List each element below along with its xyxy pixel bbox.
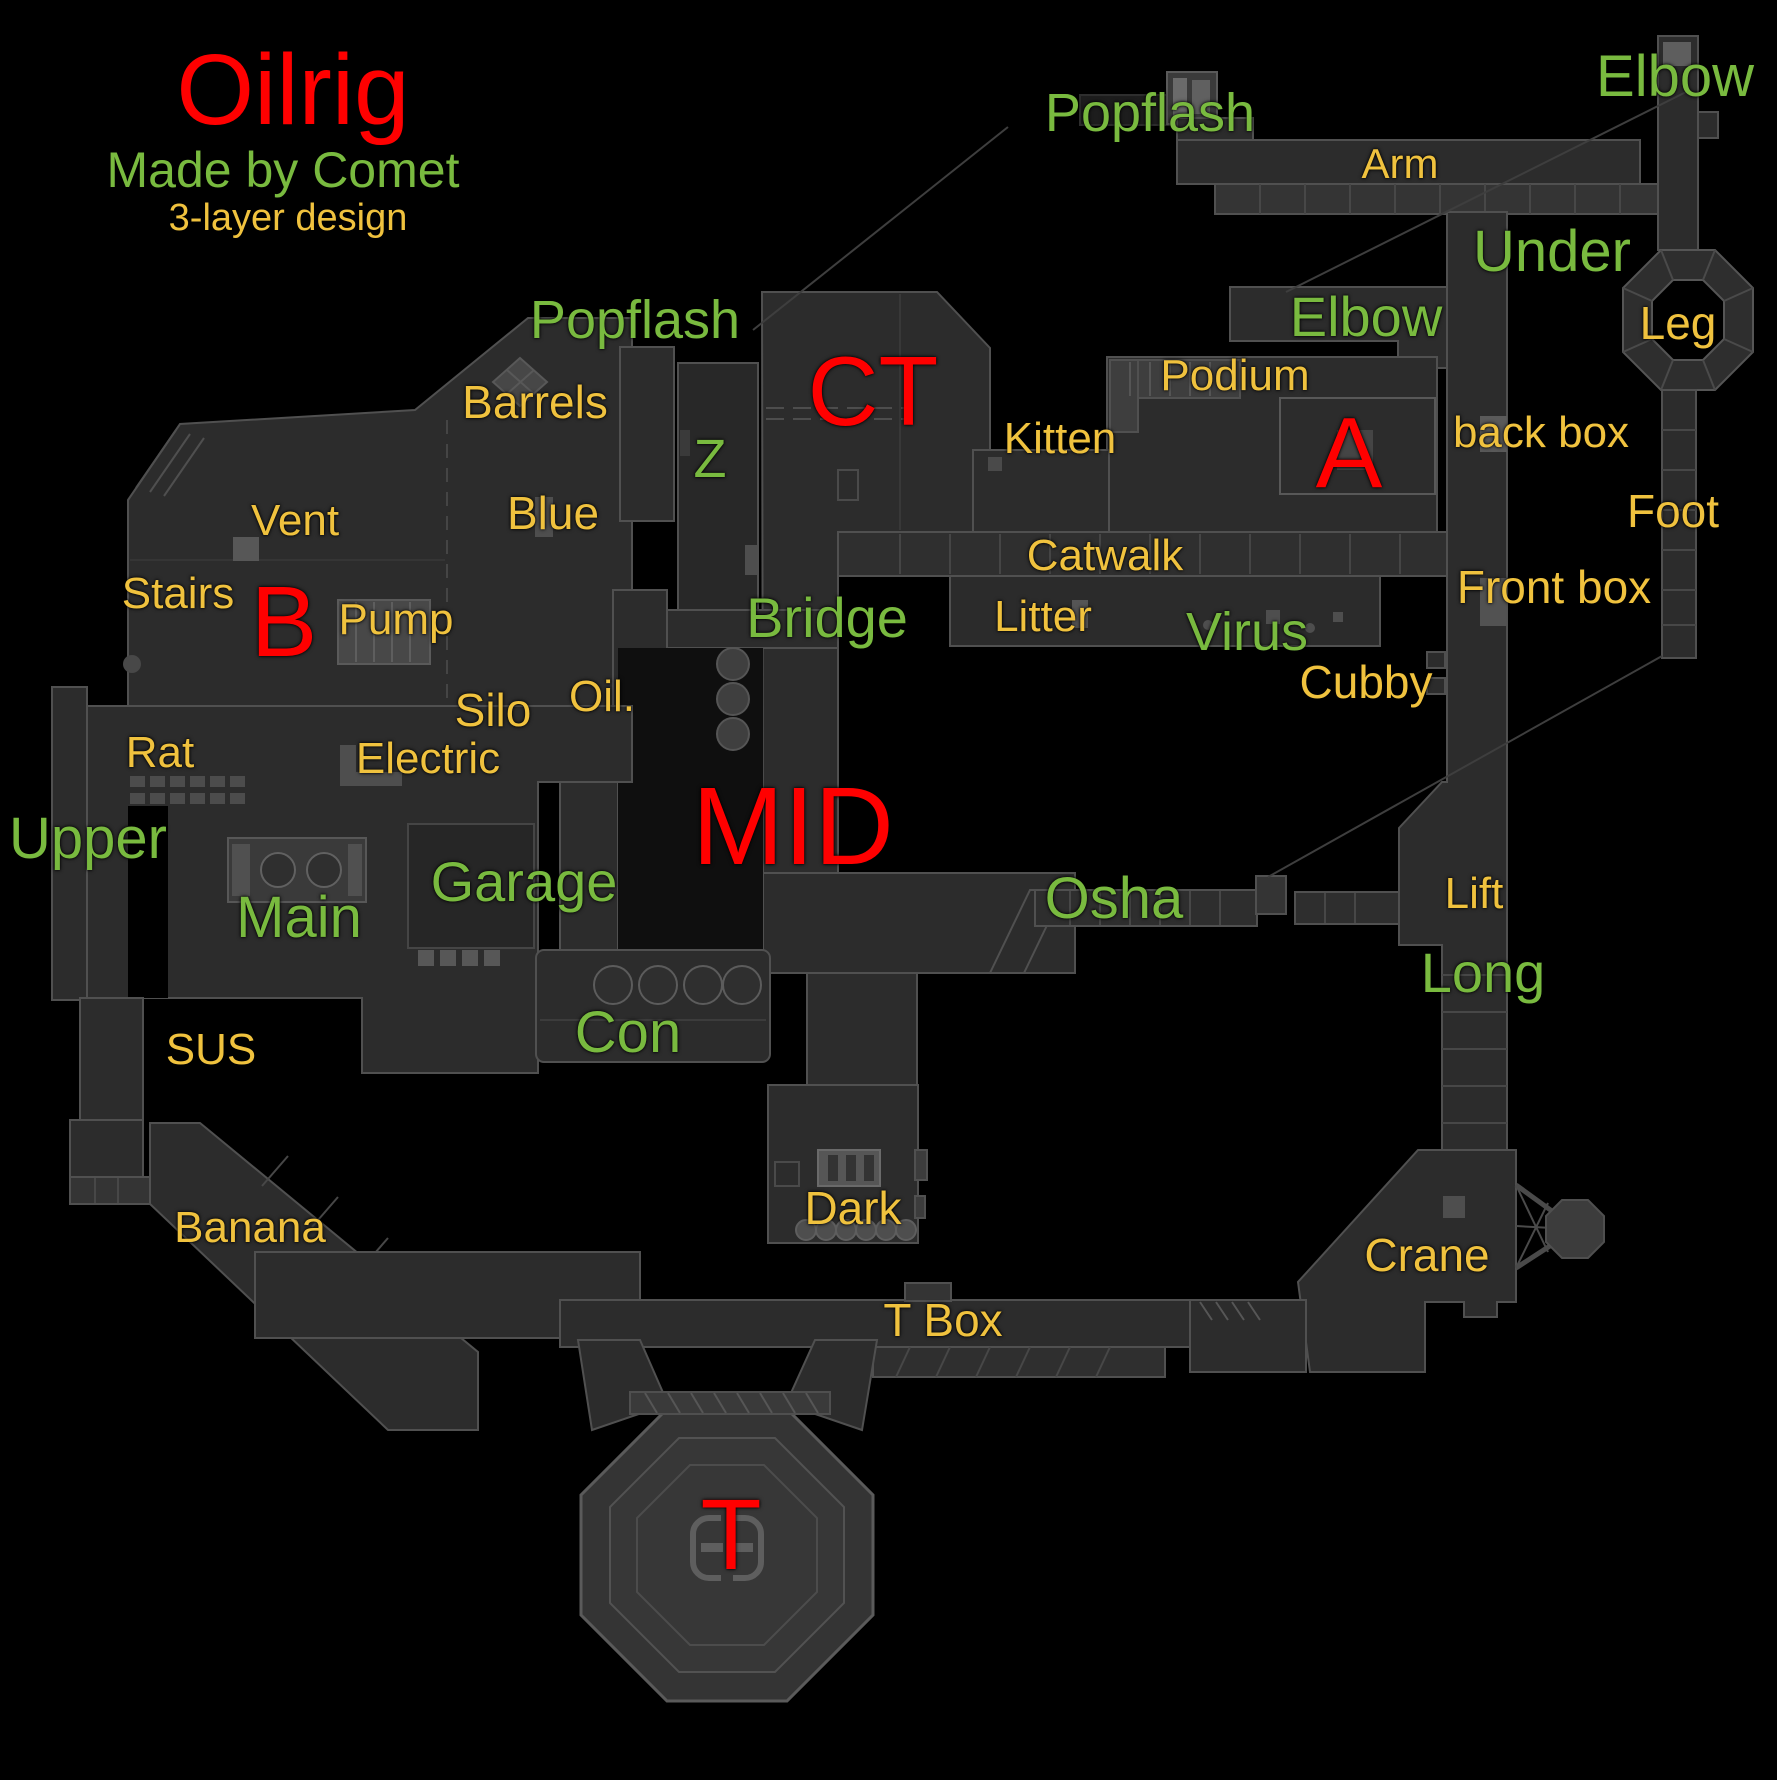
structure-con bbox=[536, 950, 770, 1062]
object-silo-tanks bbox=[717, 648, 749, 750]
structure-bridge bbox=[663, 610, 838, 648]
object-pump bbox=[338, 600, 430, 664]
structure-crane bbox=[1298, 1150, 1604, 1372]
map-structures bbox=[52, 36, 1753, 1701]
structure-upper-corridor bbox=[52, 687, 87, 1000]
structure-leg-octagon bbox=[1623, 250, 1753, 658]
object-front-box bbox=[1480, 578, 1507, 626]
structure-t-spawn bbox=[578, 1340, 877, 1701]
object-back-box bbox=[1480, 416, 1507, 452]
structure-virus bbox=[950, 576, 1380, 646]
structure-banana-plaza bbox=[150, 1123, 1306, 1430]
structure-b-site bbox=[123, 318, 632, 706]
map-overview: OilrigMade by Comet3-layer designPopflas… bbox=[0, 0, 1777, 1780]
structure-main-upper bbox=[52, 687, 632, 1204]
object-vent bbox=[233, 537, 259, 561]
object-crane-counterweight bbox=[1546, 1200, 1604, 1258]
structure-arm-elbow bbox=[1080, 36, 1718, 250]
structure-garage-room bbox=[408, 824, 534, 948]
map-svg bbox=[0, 0, 1777, 1780]
structure-osha-dark bbox=[763, 873, 1399, 1243]
